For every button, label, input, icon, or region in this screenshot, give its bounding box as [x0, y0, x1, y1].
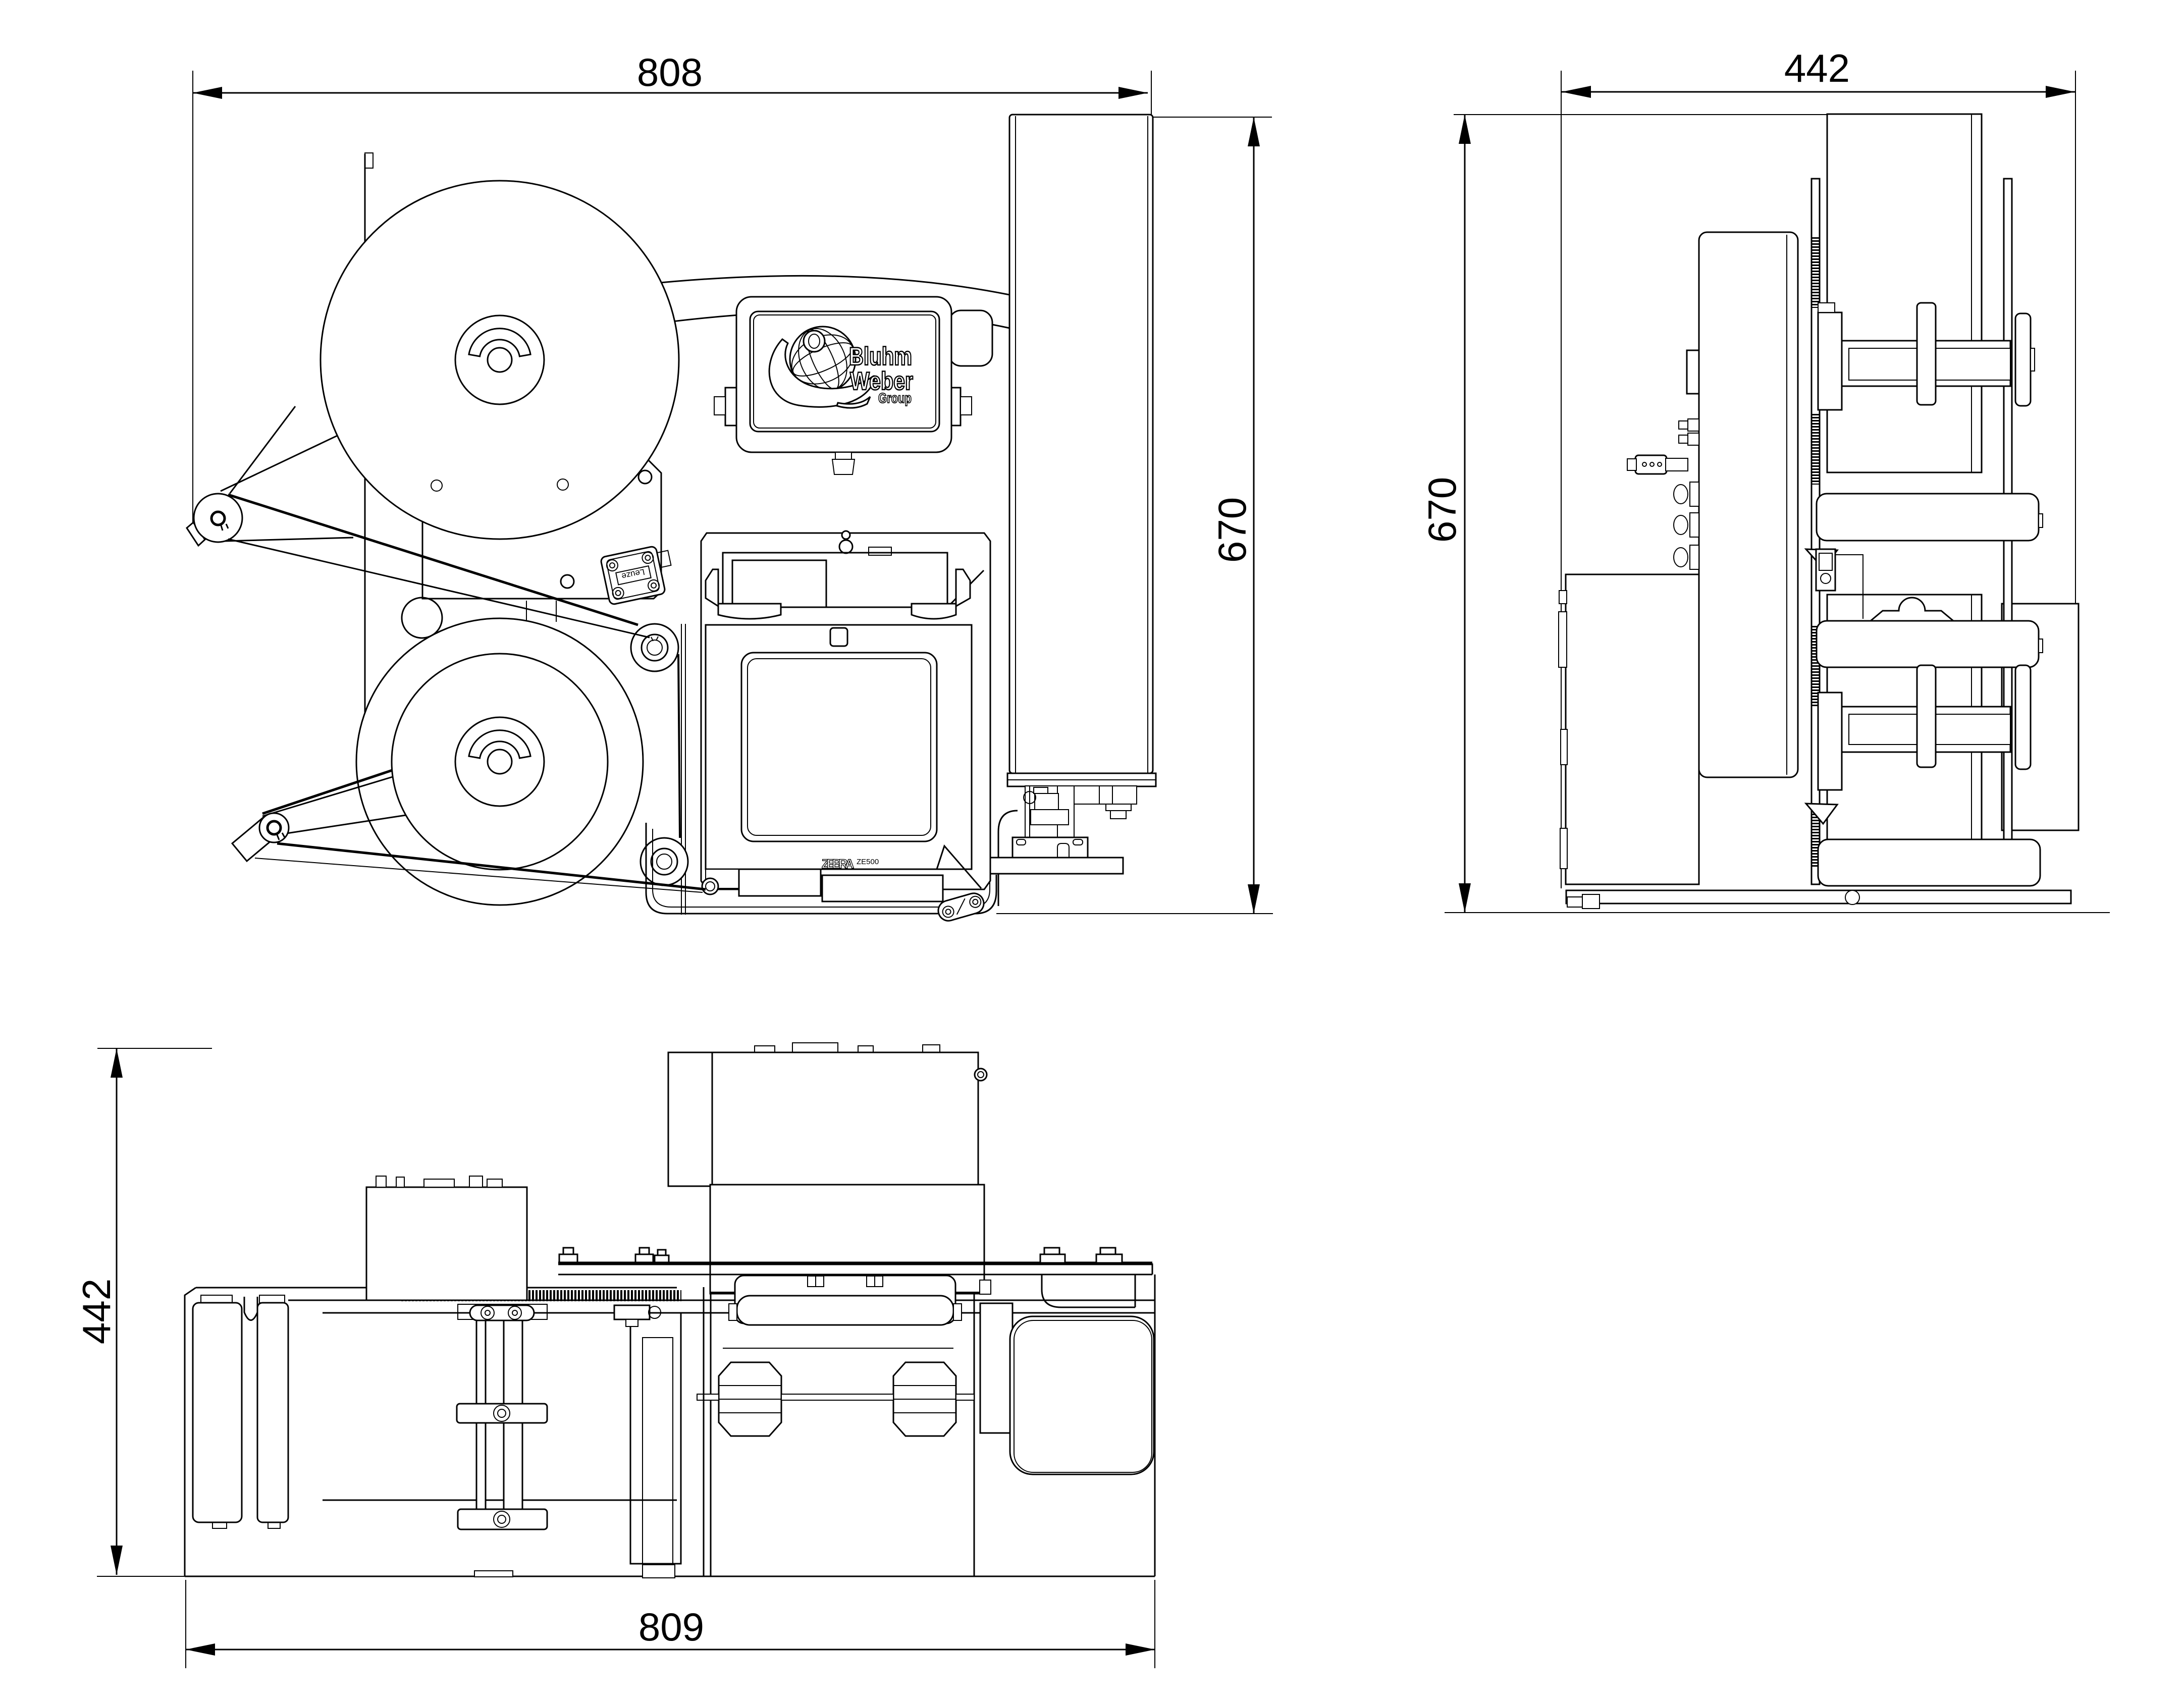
- svg-text:Bluhm: Bluhm: [849, 342, 912, 370]
- svg-text:ZE500: ZE500: [857, 858, 879, 866]
- svg-text:ZEBRA: ZEBRA: [822, 857, 854, 871]
- svg-text:670: 670: [1210, 497, 1254, 563]
- svg-text:670: 670: [1420, 477, 1464, 543]
- svg-text:442: 442: [74, 1279, 119, 1344]
- svg-text:Group: Group: [878, 390, 912, 406]
- svg-text:809: 809: [638, 1605, 704, 1649]
- svg-text:442: 442: [1784, 46, 1850, 90]
- svg-text:808: 808: [637, 50, 703, 94]
